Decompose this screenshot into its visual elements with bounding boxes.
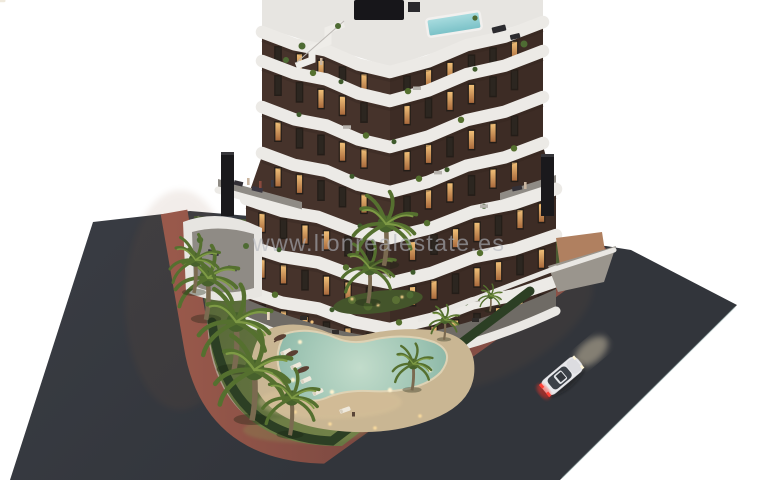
person [271, 180, 274, 187]
rooftop-vent [408, 2, 420, 12]
roof-person [320, 58, 323, 65]
person [259, 181, 262, 188]
rooftop-structure [354, 0, 404, 20]
person [524, 182, 527, 189]
chimney-right-cap [541, 154, 554, 157]
watermark-text: www.lionrealestate.es [252, 230, 505, 256]
scene-svg: www.lionrealestate.es [0, 0, 757, 480]
chimney-left-cap [221, 152, 234, 155]
person [247, 178, 250, 185]
chimney-left [221, 152, 234, 216]
chimney-right [541, 154, 554, 216]
render-image: www.lionrealestate.es [0, 0, 757, 480]
